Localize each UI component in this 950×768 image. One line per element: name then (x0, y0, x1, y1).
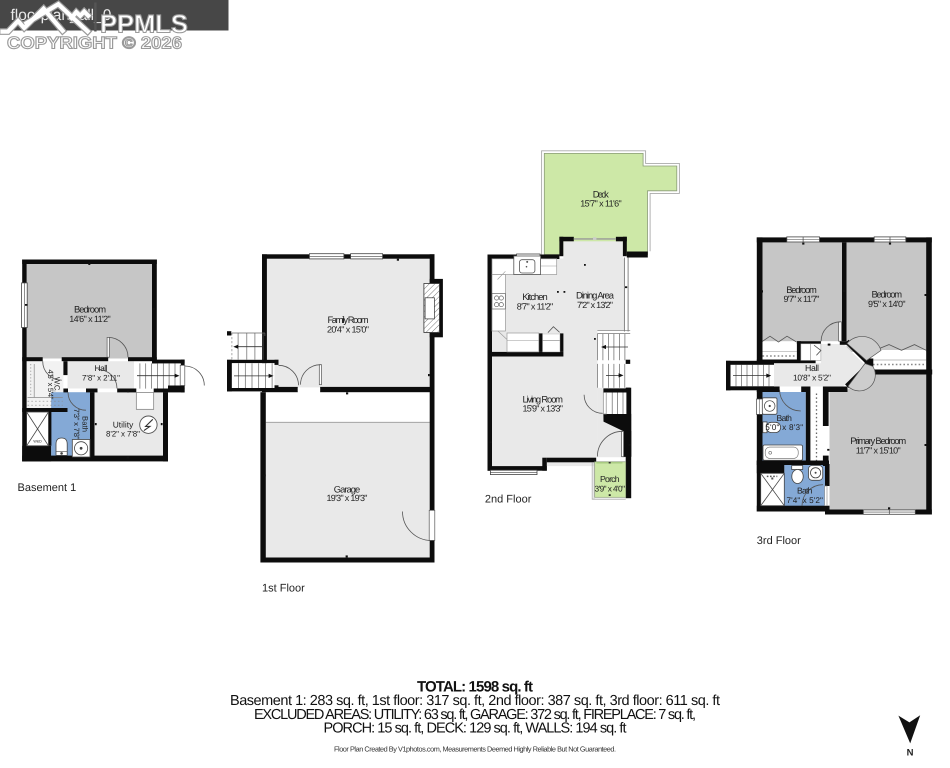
svg-text:10'8" x 5'2": 10'8" x 5'2" (793, 372, 831, 382)
svg-text:19'3" x 19'3": 19'3" x 19'3" (327, 493, 368, 503)
svg-text:N: N (907, 748, 914, 759)
svg-text:2nd Floor: 2nd Floor (485, 494, 532, 506)
svg-text:8'7" x 11'2": 8'7" x 11'2" (517, 301, 554, 311)
svg-text:9'5" x 14'0": 9'5" x 14'0" (868, 299, 906, 309)
svg-text:COPYRIGHT © 2026: COPYRIGHT © 2026 (7, 34, 182, 53)
svg-text:7'4" x 5'2": 7'4" x 5'2" (786, 496, 823, 505)
svg-text:7'2" x 13'2": 7'2" x 13'2" (577, 300, 613, 310)
svg-text:Porch: Porch (600, 474, 620, 484)
svg-text:1st Floor: 1st Floor (262, 583, 305, 595)
svg-text:Floor Plan Created By V1photos: Floor Plan Created By V1photos.com, Meas… (334, 745, 616, 754)
svg-text:11'7" x 15'10": 11'7" x 15'10" (856, 445, 901, 455)
svg-text:5'0" x 8'3": 5'0" x 8'3" (765, 423, 803, 432)
svg-text:Bedroom: Bedroom (872, 289, 903, 300)
svg-text:Bath: Bath (797, 486, 813, 496)
svg-text:W&D: W&D (33, 440, 42, 444)
svg-text:15'9" x 13'3": 15'9" x 13'3" (522, 404, 563, 414)
svg-text:Utility: Utility (113, 420, 134, 430)
svg-text:7'8" x 2'11": 7'8" x 2'11" (82, 373, 120, 382)
svg-text:3'9" x 4'0": 3'9" x 4'0" (595, 483, 626, 493)
svg-text:8'2" x 7'8": 8'2" x 7'8" (106, 430, 140, 439)
svg-text:PORCH: 15 sq. ft, DECK: 129 sq: PORCH: 15 sq. ft, DECK: 129 sq. ft, WALL… (324, 721, 627, 737)
svg-text:14'6" x 11'2": 14'6" x 11'2" (69, 314, 111, 324)
svg-text:3rd Floor: 3rd Floor (757, 535, 801, 547)
svg-text:Hall: Hall (95, 363, 108, 373)
svg-text:20'4" x 15'0": 20'4" x 15'0" (327, 325, 369, 335)
svg-text:Bath: Bath (776, 413, 792, 423)
svg-text:9'7" x 11'7": 9'7" x 11'7" (784, 294, 820, 304)
svg-text:Basement 1: Basement 1 (18, 482, 77, 494)
svg-text:Primary Bedroom: Primary Bedroom (850, 435, 906, 446)
svg-text:15'7" x 11'6": 15'7" x 11'6" (580, 198, 622, 208)
